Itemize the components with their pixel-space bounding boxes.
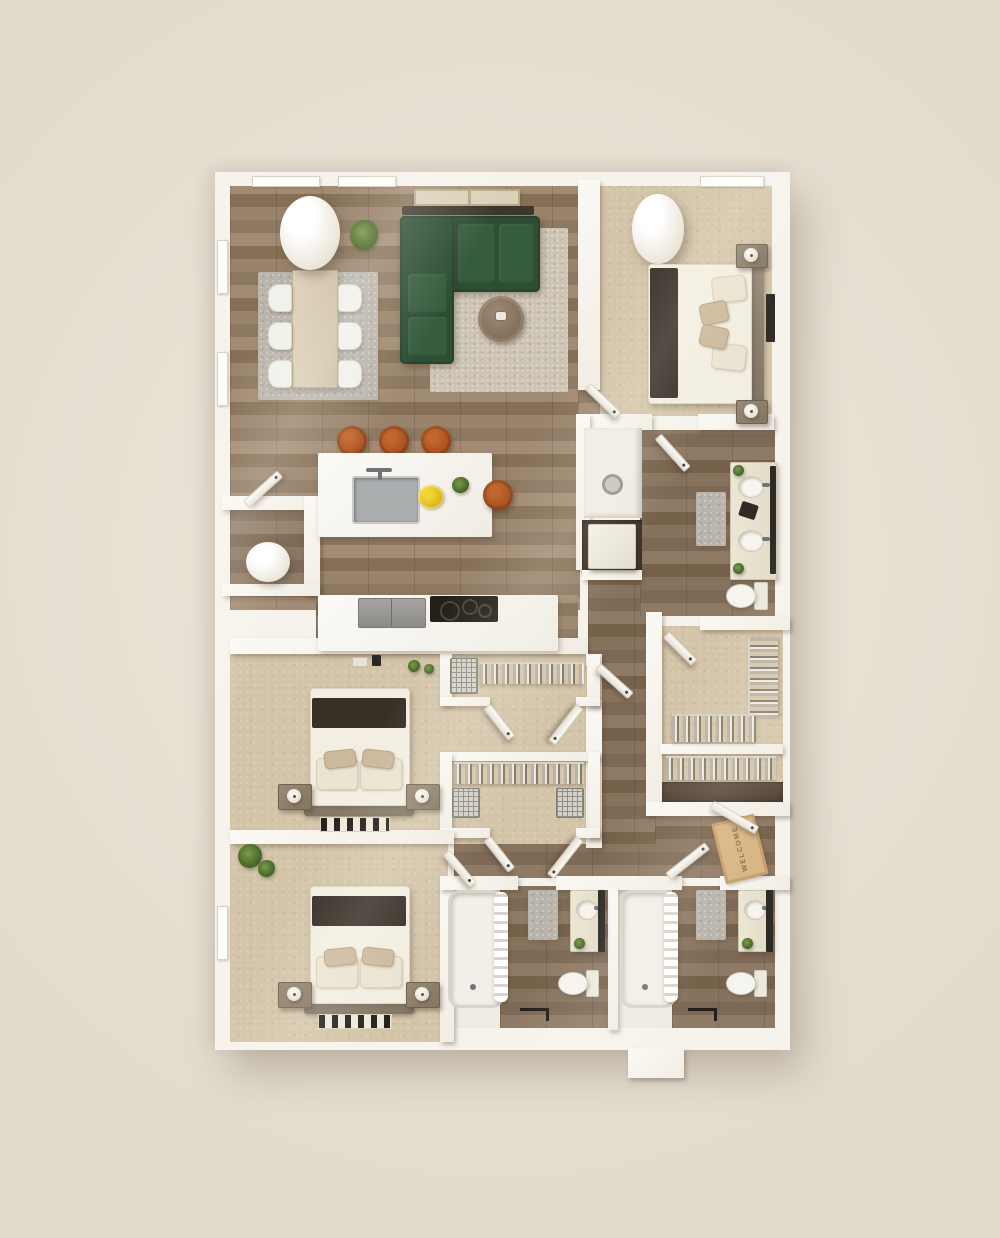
lemon-bowl — [418, 485, 444, 509]
coffee-maker — [372, 655, 381, 666]
dining-chair — [338, 360, 362, 388]
bed1-lamp-south — [744, 404, 758, 418]
bathroom2-mirror — [598, 890, 605, 952]
fridge-door-split — [391, 599, 392, 627]
burner — [478, 604, 492, 618]
dining-chair — [268, 360, 292, 388]
walkin-clothes-south — [672, 714, 756, 742]
dining-chair — [268, 284, 292, 312]
closetB-clothes — [454, 762, 584, 784]
bed1-blanket — [650, 268, 678, 398]
window-shade-panel-2 — [469, 189, 520, 206]
bed3-accent-pillow — [323, 946, 357, 967]
bed2-accent-pillow — [323, 748, 357, 769]
toilet3-bowl — [726, 972, 756, 995]
wall-bedroom2-bedroom3 — [230, 830, 454, 844]
vanity-sink-south — [738, 530, 764, 552]
bathroom2-rug — [528, 890, 558, 940]
counter-jars — [352, 657, 368, 667]
wall-closets-sep — [660, 744, 783, 754]
bathroom3-rug — [696, 890, 726, 940]
vanity-faucet-north — [762, 483, 770, 487]
bar-stool — [337, 426, 367, 456]
wall-closetB-south-2 — [576, 828, 600, 838]
vanity3-sink — [744, 900, 766, 920]
storage-cabinet — [588, 524, 636, 569]
tub3-faucet — [642, 984, 648, 990]
sofa-cushion — [408, 317, 448, 357]
refrigerator — [358, 598, 426, 628]
sofa-cushion — [499, 224, 535, 284]
wall-living-bedroom1 — [578, 180, 600, 390]
vanity2-sink — [576, 900, 598, 920]
floor-plan-render: WELCOME — [0, 0, 1000, 1238]
bathroom2-door-mark-leg — [546, 1008, 549, 1021]
bed1-lamp-north — [744, 248, 758, 262]
bed1-pillow — [711, 274, 748, 303]
wall-baths-north-2 — [556, 876, 682, 890]
bed3-lamp-east — [415, 987, 429, 1001]
shower-floor — [584, 428, 642, 518]
bed2-lamp-west — [287, 789, 301, 803]
window-left-dining-2 — [217, 352, 228, 406]
closetA-wire-basket — [450, 658, 478, 694]
shower-drain — [602, 474, 623, 495]
bed2-lamp-east — [415, 789, 429, 803]
sectional-sofa-chaise — [400, 216, 454, 364]
bed3-lamp-west — [287, 987, 301, 1001]
window-shade-panel-1 — [414, 189, 470, 206]
entry-step — [628, 1048, 684, 1078]
bathroom3-door-mark — [688, 1008, 716, 1011]
toilet1-bowl — [726, 584, 756, 608]
toilet1-tank — [754, 582, 768, 610]
wall-closetA-south-1 — [440, 697, 490, 706]
wall-closetB-east — [588, 752, 600, 838]
bar-stool — [483, 480, 513, 510]
dining-chair — [338, 284, 362, 312]
bar-stool — [379, 426, 409, 456]
wall-bath1-closet-sep — [700, 616, 790, 630]
linen-closet-clothes — [666, 756, 776, 780]
sofa-cushion — [408, 274, 448, 314]
bed3-blanket — [312, 896, 406, 926]
island-faucet-spout — [378, 468, 382, 480]
coffee-table — [478, 296, 524, 342]
wall-bath2-bath3 — [608, 888, 618, 1030]
bathroom3-door-mark-leg — [714, 1008, 717, 1021]
column-living — [280, 196, 340, 270]
bathroom3-mirror — [766, 890, 773, 952]
column-bedroom1 — [632, 194, 684, 264]
burner — [462, 599, 478, 615]
wall-closetB-west — [440, 752, 452, 838]
bathroom1-rug — [696, 492, 726, 546]
wall-closetB-north — [440, 752, 600, 761]
vanity-sink-north — [738, 476, 764, 498]
dining-chair — [338, 322, 362, 350]
welcome-mat-text: WELCOME — [731, 825, 749, 872]
closetB-wire-basket-west — [452, 788, 480, 818]
island-sink — [352, 476, 420, 524]
bed2-blanket — [312, 698, 406, 728]
bed2-accent-pillow — [361, 748, 395, 769]
wall-utility-south — [222, 584, 320, 596]
bed1-wall-art — [766, 294, 775, 342]
cooktop — [430, 596, 498, 622]
bed3-accent-rug — [318, 1014, 392, 1029]
bathroom1-mirror — [770, 466, 776, 574]
wall-closetA-south-2 — [576, 697, 600, 706]
wall-closet-west — [646, 612, 662, 812]
tub2-faucet — [470, 984, 476, 990]
window-left-bedroom3 — [217, 906, 228, 960]
bed3-accent-pillow — [361, 946, 395, 967]
bathroom2-door-mark — [520, 1008, 548, 1011]
table-decor — [496, 312, 506, 320]
tv-shadow-line — [402, 206, 534, 215]
linen-closet-shelf — [662, 782, 783, 802]
burner — [440, 601, 460, 621]
walkin-clothes-east — [748, 638, 778, 718]
closetB-wire-basket-east — [556, 788, 584, 818]
water-heater — [246, 542, 290, 582]
window-top-dining-2 — [338, 176, 396, 187]
shower-curtain-3 — [664, 892, 678, 1002]
dining-table — [292, 270, 338, 388]
wall-baths-north-1 — [440, 876, 518, 890]
shower-curtain-2 — [494, 892, 508, 1002]
window-left-dining-1 — [217, 240, 228, 294]
vanity-faucet-south — [762, 537, 770, 541]
dining-chair — [268, 322, 292, 350]
bar-stool — [421, 426, 451, 456]
toilet2-bowl — [558, 972, 588, 995]
closetA-clothes — [480, 662, 584, 684]
sofa-cushion — [458, 224, 496, 284]
window-top-dining-1 — [252, 176, 320, 187]
bed2-accent-rug — [320, 817, 390, 832]
window-top-bedroom1 — [700, 176, 764, 187]
